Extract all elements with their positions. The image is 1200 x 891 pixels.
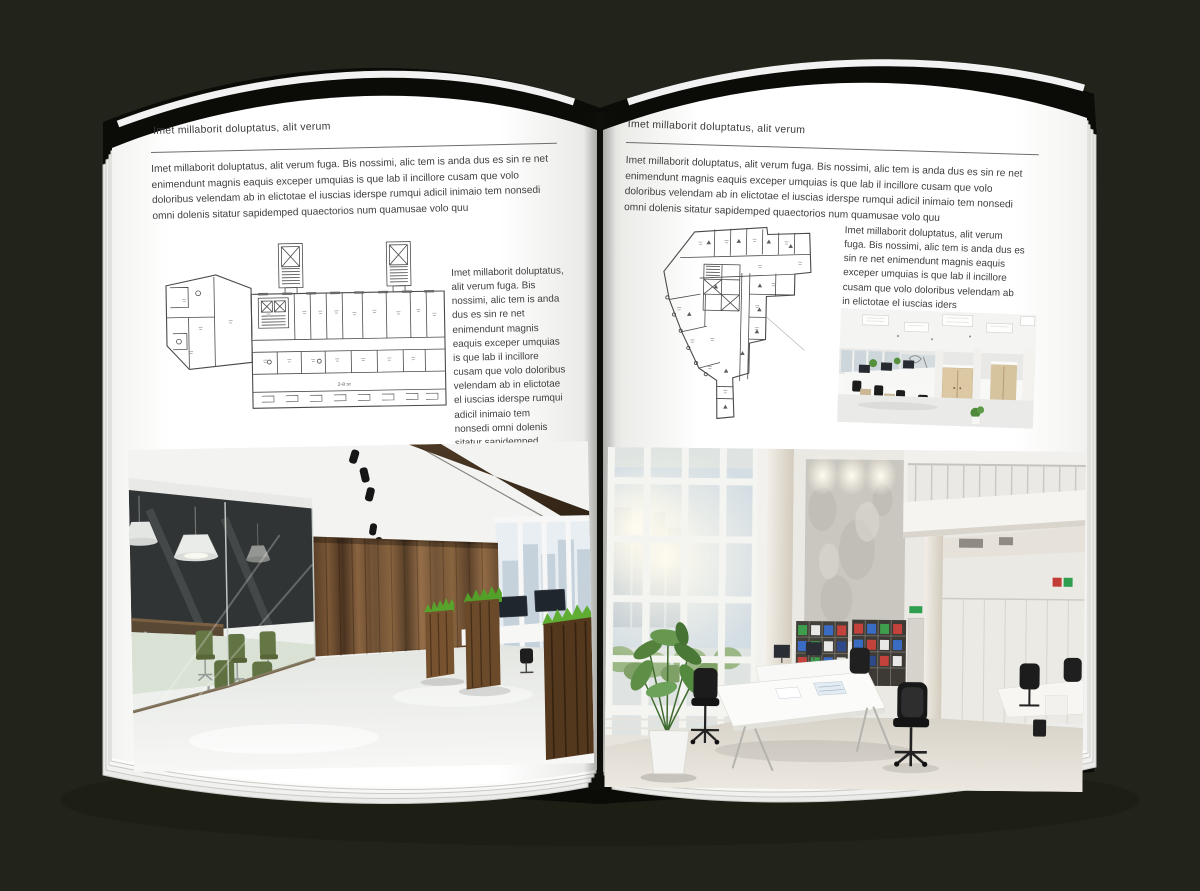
right-side-paragraph: Imet millaborit doluptatus, alit verum f… [842,224,1026,316]
office-photo-right-large [604,447,1086,792]
floorplan-left: 2-й эт [157,225,452,418]
left-intro-paragraph: Imet millaborit doluptatus, alit verum f… [151,151,561,224]
office-photo-right-small [837,308,1037,429]
floorplan-right [645,219,847,431]
floorplan-corridor-label: 2-й эт [338,381,352,388]
office-photo-left-large [128,441,594,772]
magazine-spread-mockup: Imet millaborit doluptatus, alit verum I… [0,0,1200,891]
